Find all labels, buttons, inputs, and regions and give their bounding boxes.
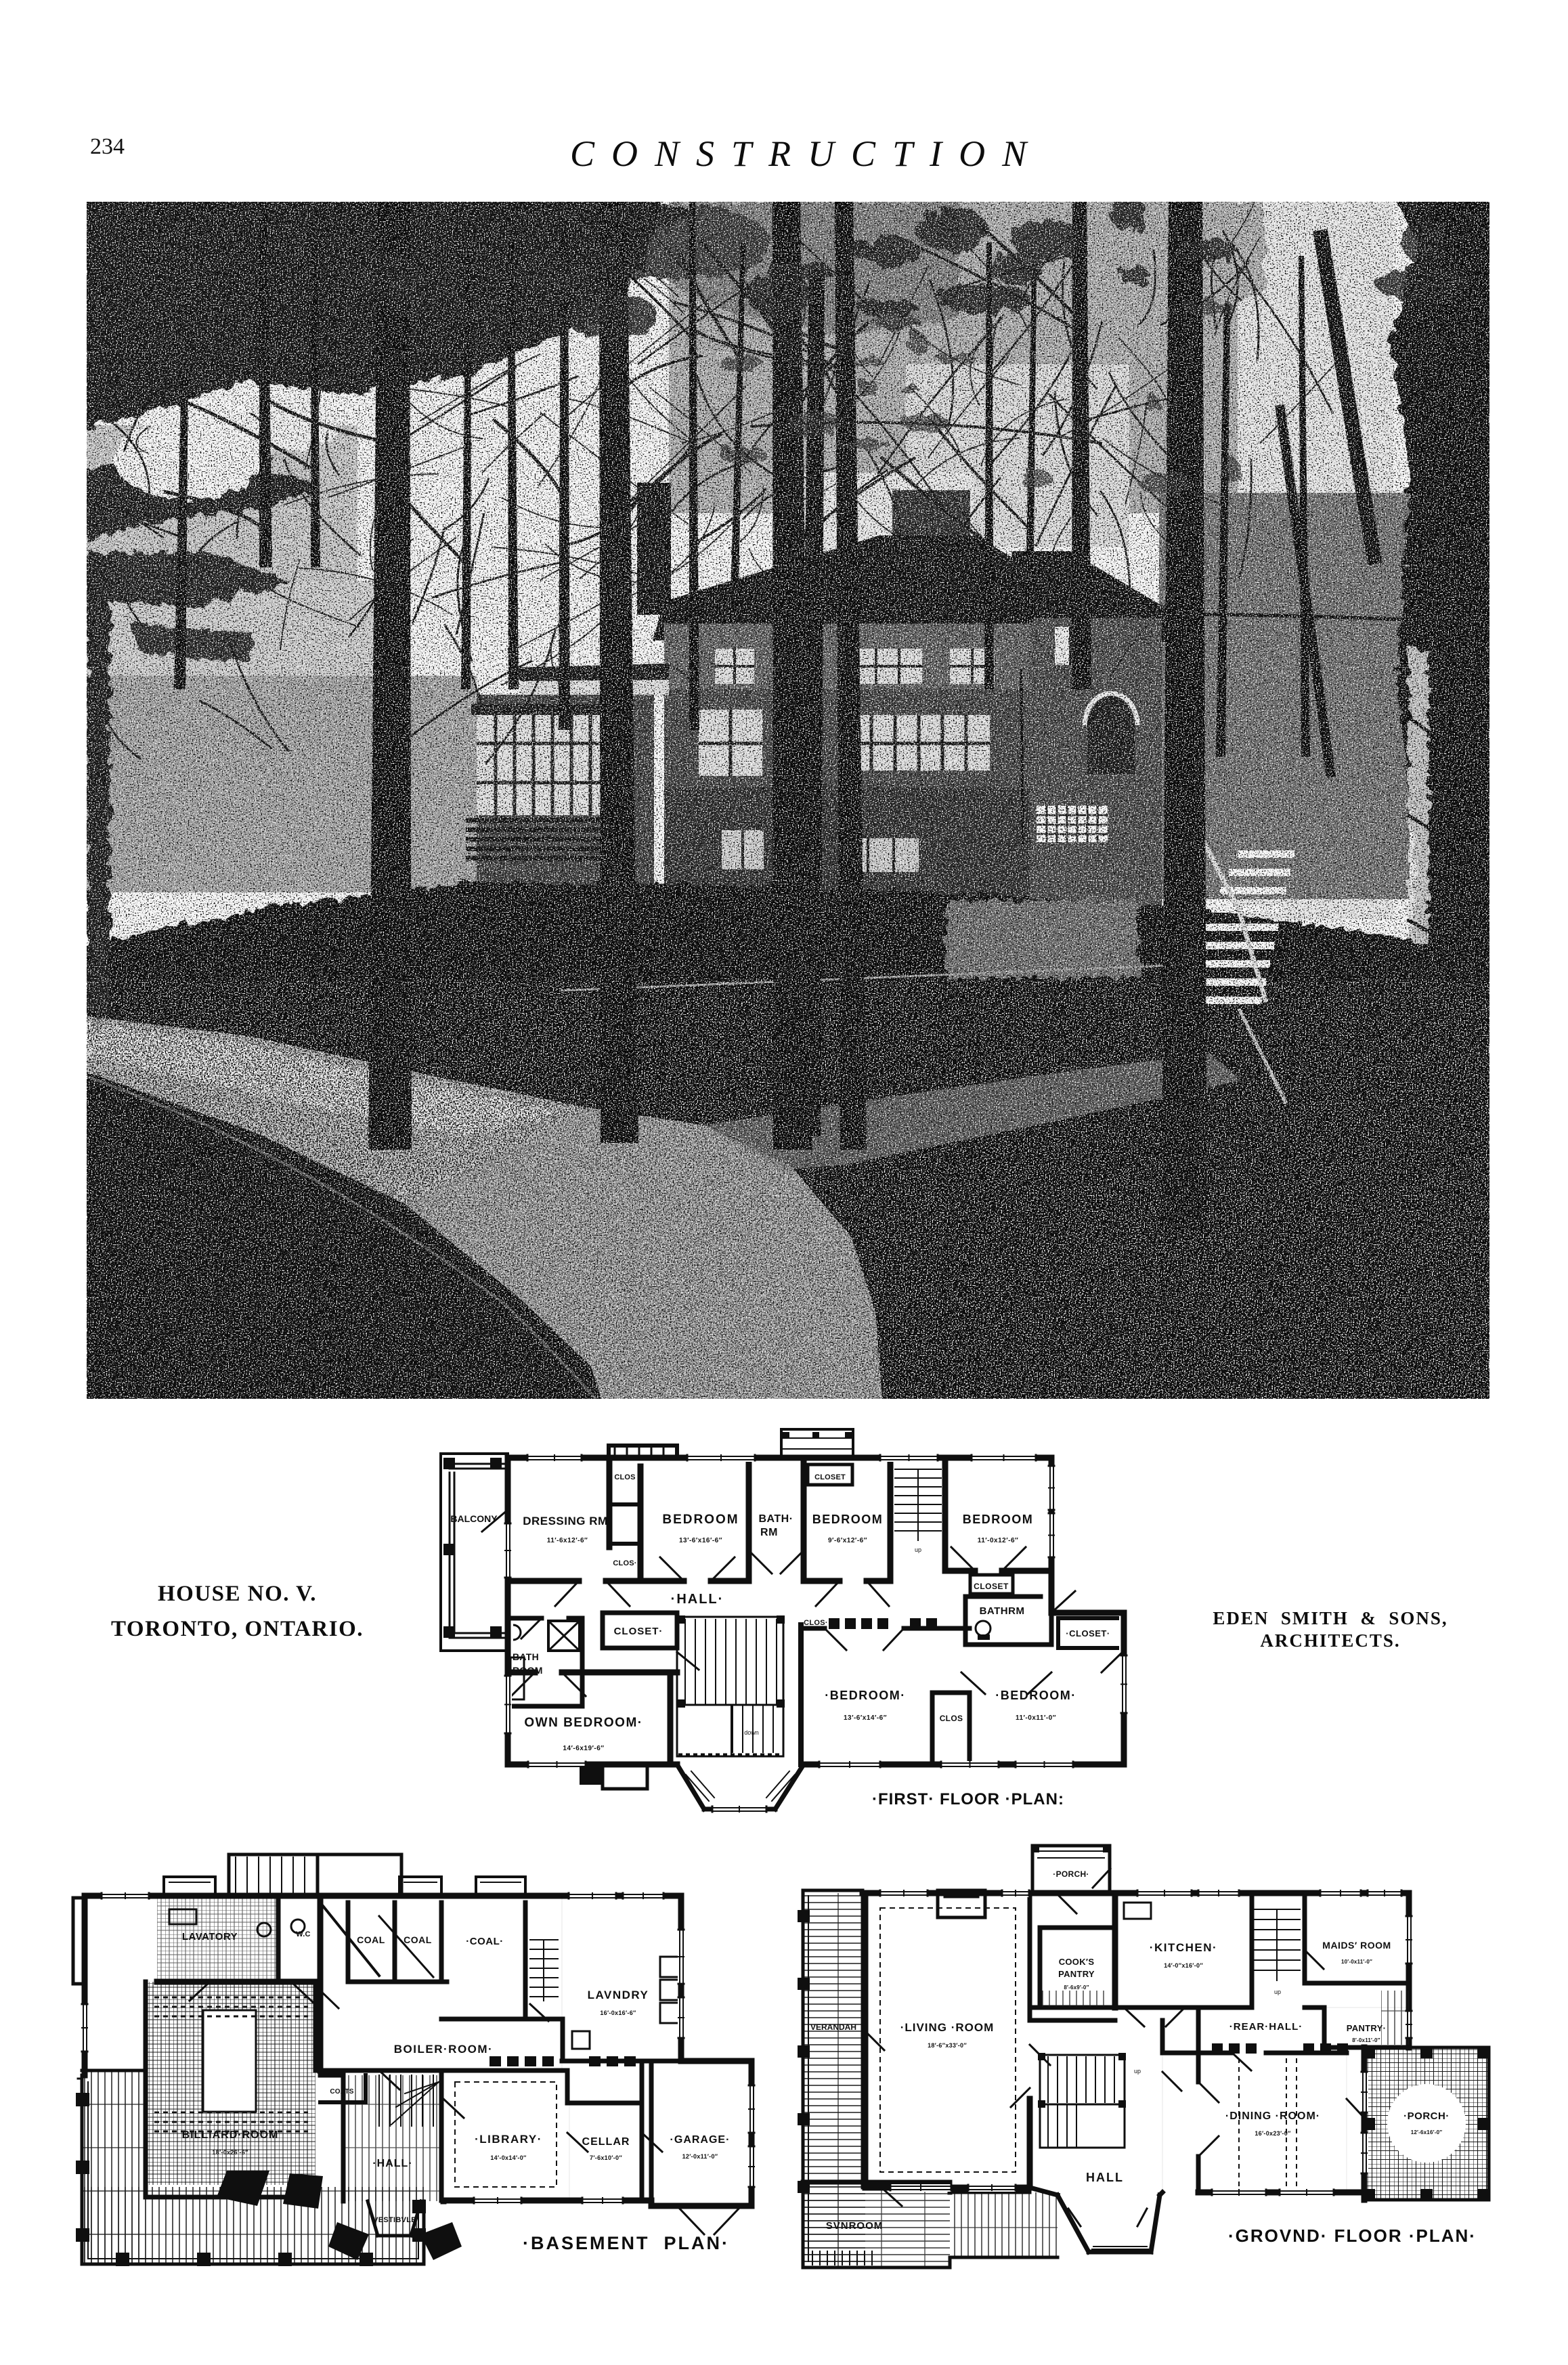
svg-text:11′-0x11′-0″: 11′-0x11′-0″ [1016, 1714, 1056, 1722]
svg-text:BATH: BATH [513, 1651, 539, 1662]
svg-text:BEDROOM: BEDROOM [963, 1513, 1034, 1526]
svg-text:CLOSET: CLOSET [974, 1582, 1009, 1591]
svg-text:DRESSING RM·: DRESSING RM· [523, 1515, 612, 1527]
svg-text:CELLAR: CELLAR [582, 2136, 630, 2148]
svg-text:BILLIARD·ROOM: BILLIARD·ROOM [182, 2129, 279, 2141]
svg-text:COOK′S: COOK′S [1059, 1957, 1095, 1967]
svg-text:·BEDROOM·: ·BEDROOM· [825, 1689, 906, 1702]
svg-text:SVNROOM: SVNROOM [826, 2220, 884, 2232]
svg-text:OWN BEDROOM·: OWN BEDROOM· [524, 1716, 643, 1730]
svg-text:·KITCHEN·: ·KITCHEN· [1150, 1941, 1217, 1954]
svg-text:LAVNDRY: LAVNDRY [588, 1989, 649, 2001]
svg-text:BALCONY: BALCONY [450, 1513, 498, 1524]
svg-text:BEDROOM: BEDROOM [812, 1513, 884, 1526]
svg-text:W.C: W.C [296, 1930, 310, 1938]
svg-text:MAIDS′ ROOM: MAIDS′ ROOM [1322, 1940, 1391, 1951]
svg-text:BATH·: BATH· [758, 1513, 793, 1525]
svg-text:8′-0x11′-0″: 8′-0x11′-0″ [1352, 2037, 1380, 2043]
svg-text:·CLOSET·: ·CLOSET· [1066, 1628, 1110, 1639]
svg-text:BEDROOM: BEDROOM [662, 1513, 739, 1527]
svg-text:down: down [744, 1729, 759, 1736]
svg-text:12′-6x16′-0″: 12′-6x16′-0″ [1411, 2129, 1443, 2135]
svg-text:COAL: COAL [357, 1934, 385, 1945]
svg-text:14′-6x19′-6″: 14′-6x19′-6″ [563, 1745, 604, 1752]
svg-text:CLOS·: CLOS· [613, 1559, 636, 1567]
svg-text:LAVATORY: LAVATORY [182, 1931, 238, 1943]
svg-text:BATHRM: BATHRM [980, 1605, 1025, 1617]
svg-text:·BEDROOM·: ·BEDROOM· [995, 1689, 1076, 1702]
svg-text:CLOS·: CLOS· [804, 1619, 828, 1627]
svg-text:VERANDAH: VERANDAH [810, 2022, 856, 2032]
svg-text:·LIVING ·ROOM: ·LIVING ·ROOM [900, 2021, 995, 2034]
svg-text:·PORCH·: ·PORCH· [1403, 2110, 1450, 2122]
svg-text:COAL: COAL [404, 1934, 432, 1945]
svg-text:CLOS: CLOS [940, 1714, 963, 1723]
svg-text:HALL: HALL [1086, 2171, 1124, 2184]
svg-text:·HALL·: ·HALL· [372, 2158, 412, 2169]
svg-text:up: up [1274, 1989, 1281, 1995]
svg-text:9′-6′x12′-6″: 9′-6′x12′-6″ [828, 1537, 867, 1544]
svg-text:16′-0x16′-6″: 16′-0x16′-6″ [600, 2010, 636, 2016]
svg-text:RM: RM [760, 1527, 778, 1538]
svg-text:up: up [915, 1546, 921, 1553]
svg-text:11′-0x12′-6″: 11′-0x12′-6″ [978, 1537, 1019, 1544]
svg-text:14′-0x14′-0″: 14′-0x14′-0″ [490, 2154, 527, 2161]
svg-text:14′-0″x16′-0″: 14′-0″x16′-0″ [1164, 1962, 1203, 1969]
svg-text:BOILER·ROOM·: BOILER·ROOM· [394, 2043, 493, 2056]
svg-text:·PORCH·: ·PORCH· [1053, 1869, 1089, 1879]
svg-text:CLOSET·: CLOSET· [614, 1626, 663, 1637]
svg-text:PANTRY: PANTRY [1058, 1969, 1095, 1979]
svg-text:10′-0x11′-0″: 10′-0x11′-0″ [1341, 1959, 1372, 1965]
svg-text:·GARAGE·: ·GARAGE· [670, 2134, 731, 2146]
svg-text:18′-6″x33′-0″: 18′-6″x33′-0″ [928, 2042, 967, 2049]
svg-text:PANTRY·: PANTRY· [1347, 2023, 1386, 2033]
svg-text:13′-6′x16′-6″: 13′-6′x16′-6″ [679, 1537, 722, 1544]
svg-text:·LIBRARY·: ·LIBRARY· [475, 2133, 542, 2146]
svg-text:12′-0x11′-0″: 12′-0x11′-0″ [682, 2153, 718, 2160]
svg-text:CLOS: CLOS [614, 1473, 635, 1481]
svg-text:13′-6′x14′-6″: 13′-6′x14′-6″ [844, 1714, 887, 1722]
svg-text:ROOM: ROOM [513, 1665, 543, 1676]
svg-text:16′-0x23′-0″: 16′-0x23′-0″ [1255, 2130, 1291, 2137]
svg-text:8′-6x9′-0″: 8′-6x9′-0″ [1064, 1984, 1089, 1991]
svg-text:7′-6x10′-0″: 7′-6x10′-0″ [590, 2154, 622, 2161]
svg-text:·HALL·: ·HALL· [671, 1592, 724, 1607]
svg-text:·COAL·: ·COAL· [466, 1936, 504, 1947]
svg-text:COATS: COATS [330, 2088, 353, 2096]
svg-text:·DINING ·ROOM·: ·DINING ·ROOM· [1225, 2110, 1320, 2122]
svg-text:up: up [1134, 2068, 1141, 2075]
svg-text:18′-0x26′-6″: 18′-0x26′-6″ [212, 2149, 248, 2156]
svg-text:·REAR·HALL·: ·REAR·HALL· [1229, 2021, 1303, 2033]
svg-text:VESTIBVLE: VESTIBVLE [373, 2216, 416, 2224]
svg-text:11′-6x12′-6″: 11′-6x12′-6″ [547, 1537, 588, 1544]
svg-text:CLOSET: CLOSET [814, 1473, 846, 1481]
